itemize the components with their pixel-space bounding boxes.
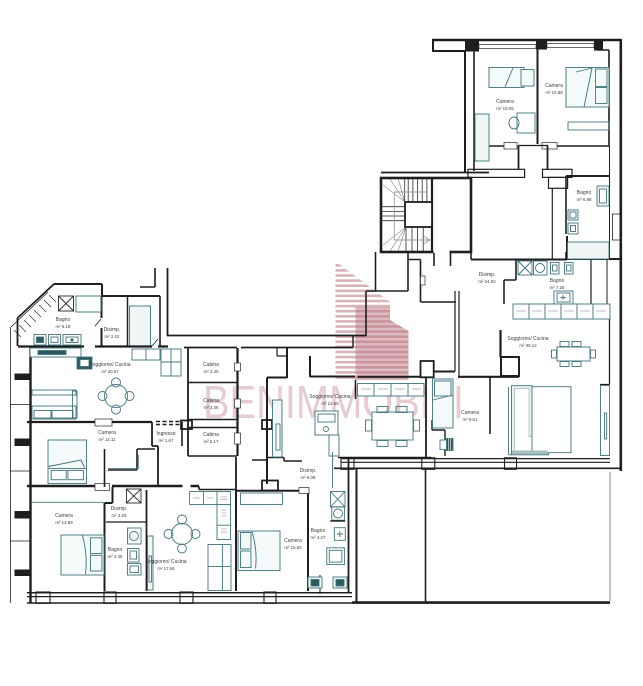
svg-text:m² 17.56: m² 17.56 — [157, 566, 175, 571]
svg-text:Camera: Camera — [496, 99, 514, 105]
svg-text:m² 14.11: m² 14.11 — [98, 437, 116, 442]
svg-text:m² 3.36: m² 3.36 — [204, 405, 219, 410]
svg-text:m² 9.61: m² 9.61 — [463, 417, 478, 422]
svg-text:Disimp.: Disimp. — [111, 506, 128, 512]
svg-text:m² 7.25: m² 7.25 — [550, 285, 565, 290]
svg-text:m² 6.88: m² 6.88 — [577, 197, 592, 202]
svg-text:m² 3.30: m² 3.30 — [204, 369, 219, 374]
svg-text:Soggiorno/ Cucina: Soggiorno/ Cucina — [89, 362, 130, 368]
svg-text:m² 14.89: m² 14.89 — [55, 520, 73, 525]
svg-text:Soggiorno/ Cucina: Soggiorno/ Cucina — [309, 394, 350, 400]
svg-text:Disimp.: Disimp. — [300, 468, 317, 474]
svg-text:m² 1.67: m² 1.67 — [159, 438, 174, 443]
svg-text:Soggiorno/ Cucina: Soggiorno/ Cucina — [507, 336, 548, 342]
svg-text:Cabina: Cabina — [203, 362, 219, 368]
svg-text:Bagno: Bagno — [577, 190, 592, 196]
svg-text:m² 15.88: m² 15.88 — [545, 90, 563, 95]
svg-text:m² 30.12: m² 30.12 — [519, 343, 537, 348]
svg-text:Camera: Camera — [545, 83, 563, 89]
svg-text:m² 15.05: m² 15.05 — [496, 106, 514, 111]
svg-text:Disimp.: Disimp. — [104, 327, 121, 333]
svg-text:Bagno: Bagno — [56, 317, 71, 323]
svg-text:m² 15.84: m² 15.84 — [284, 545, 302, 550]
svg-text:m² 4.27: m² 4.27 — [311, 535, 326, 540]
svg-text:Camera: Camera — [55, 513, 73, 519]
svg-text:Camera: Camera — [461, 410, 479, 416]
svg-text:Cabina: Cabina — [203, 432, 219, 438]
svg-text:Camera: Camera — [284, 538, 302, 544]
svg-text:m² 24.92: m² 24.92 — [478, 279, 496, 284]
svg-text:Camera: Camera — [98, 430, 116, 436]
svg-text:m² 2.25: m² 2.25 — [112, 513, 127, 518]
svg-text:m² 20.97: m² 20.97 — [101, 369, 119, 374]
svg-text:Cabina: Cabina — [203, 398, 219, 404]
svg-text:Bagno: Bagno — [108, 547, 123, 553]
svg-text:Bagno: Bagno — [550, 278, 565, 284]
svg-text:m² 22.65: m² 22.65 — [321, 401, 339, 406]
svg-text:m² 6.19: m² 6.19 — [56, 324, 71, 329]
svg-text:m² 2.22: m² 2.22 — [105, 334, 120, 339]
svg-text:Disimp.: Disimp. — [479, 272, 496, 278]
svg-text:Ingresso: Ingresso — [156, 431, 175, 437]
svg-text:m² 4.45: m² 4.45 — [108, 554, 123, 559]
svg-text:m² 6.08: m² 6.08 — [301, 475, 316, 480]
svg-text:Soggiorno/ Cucina: Soggiorno/ Cucina — [145, 559, 186, 565]
svg-text:Bagno: Bagno — [311, 528, 326, 534]
svg-text:m² 5.17: m² 5.17 — [204, 439, 219, 444]
